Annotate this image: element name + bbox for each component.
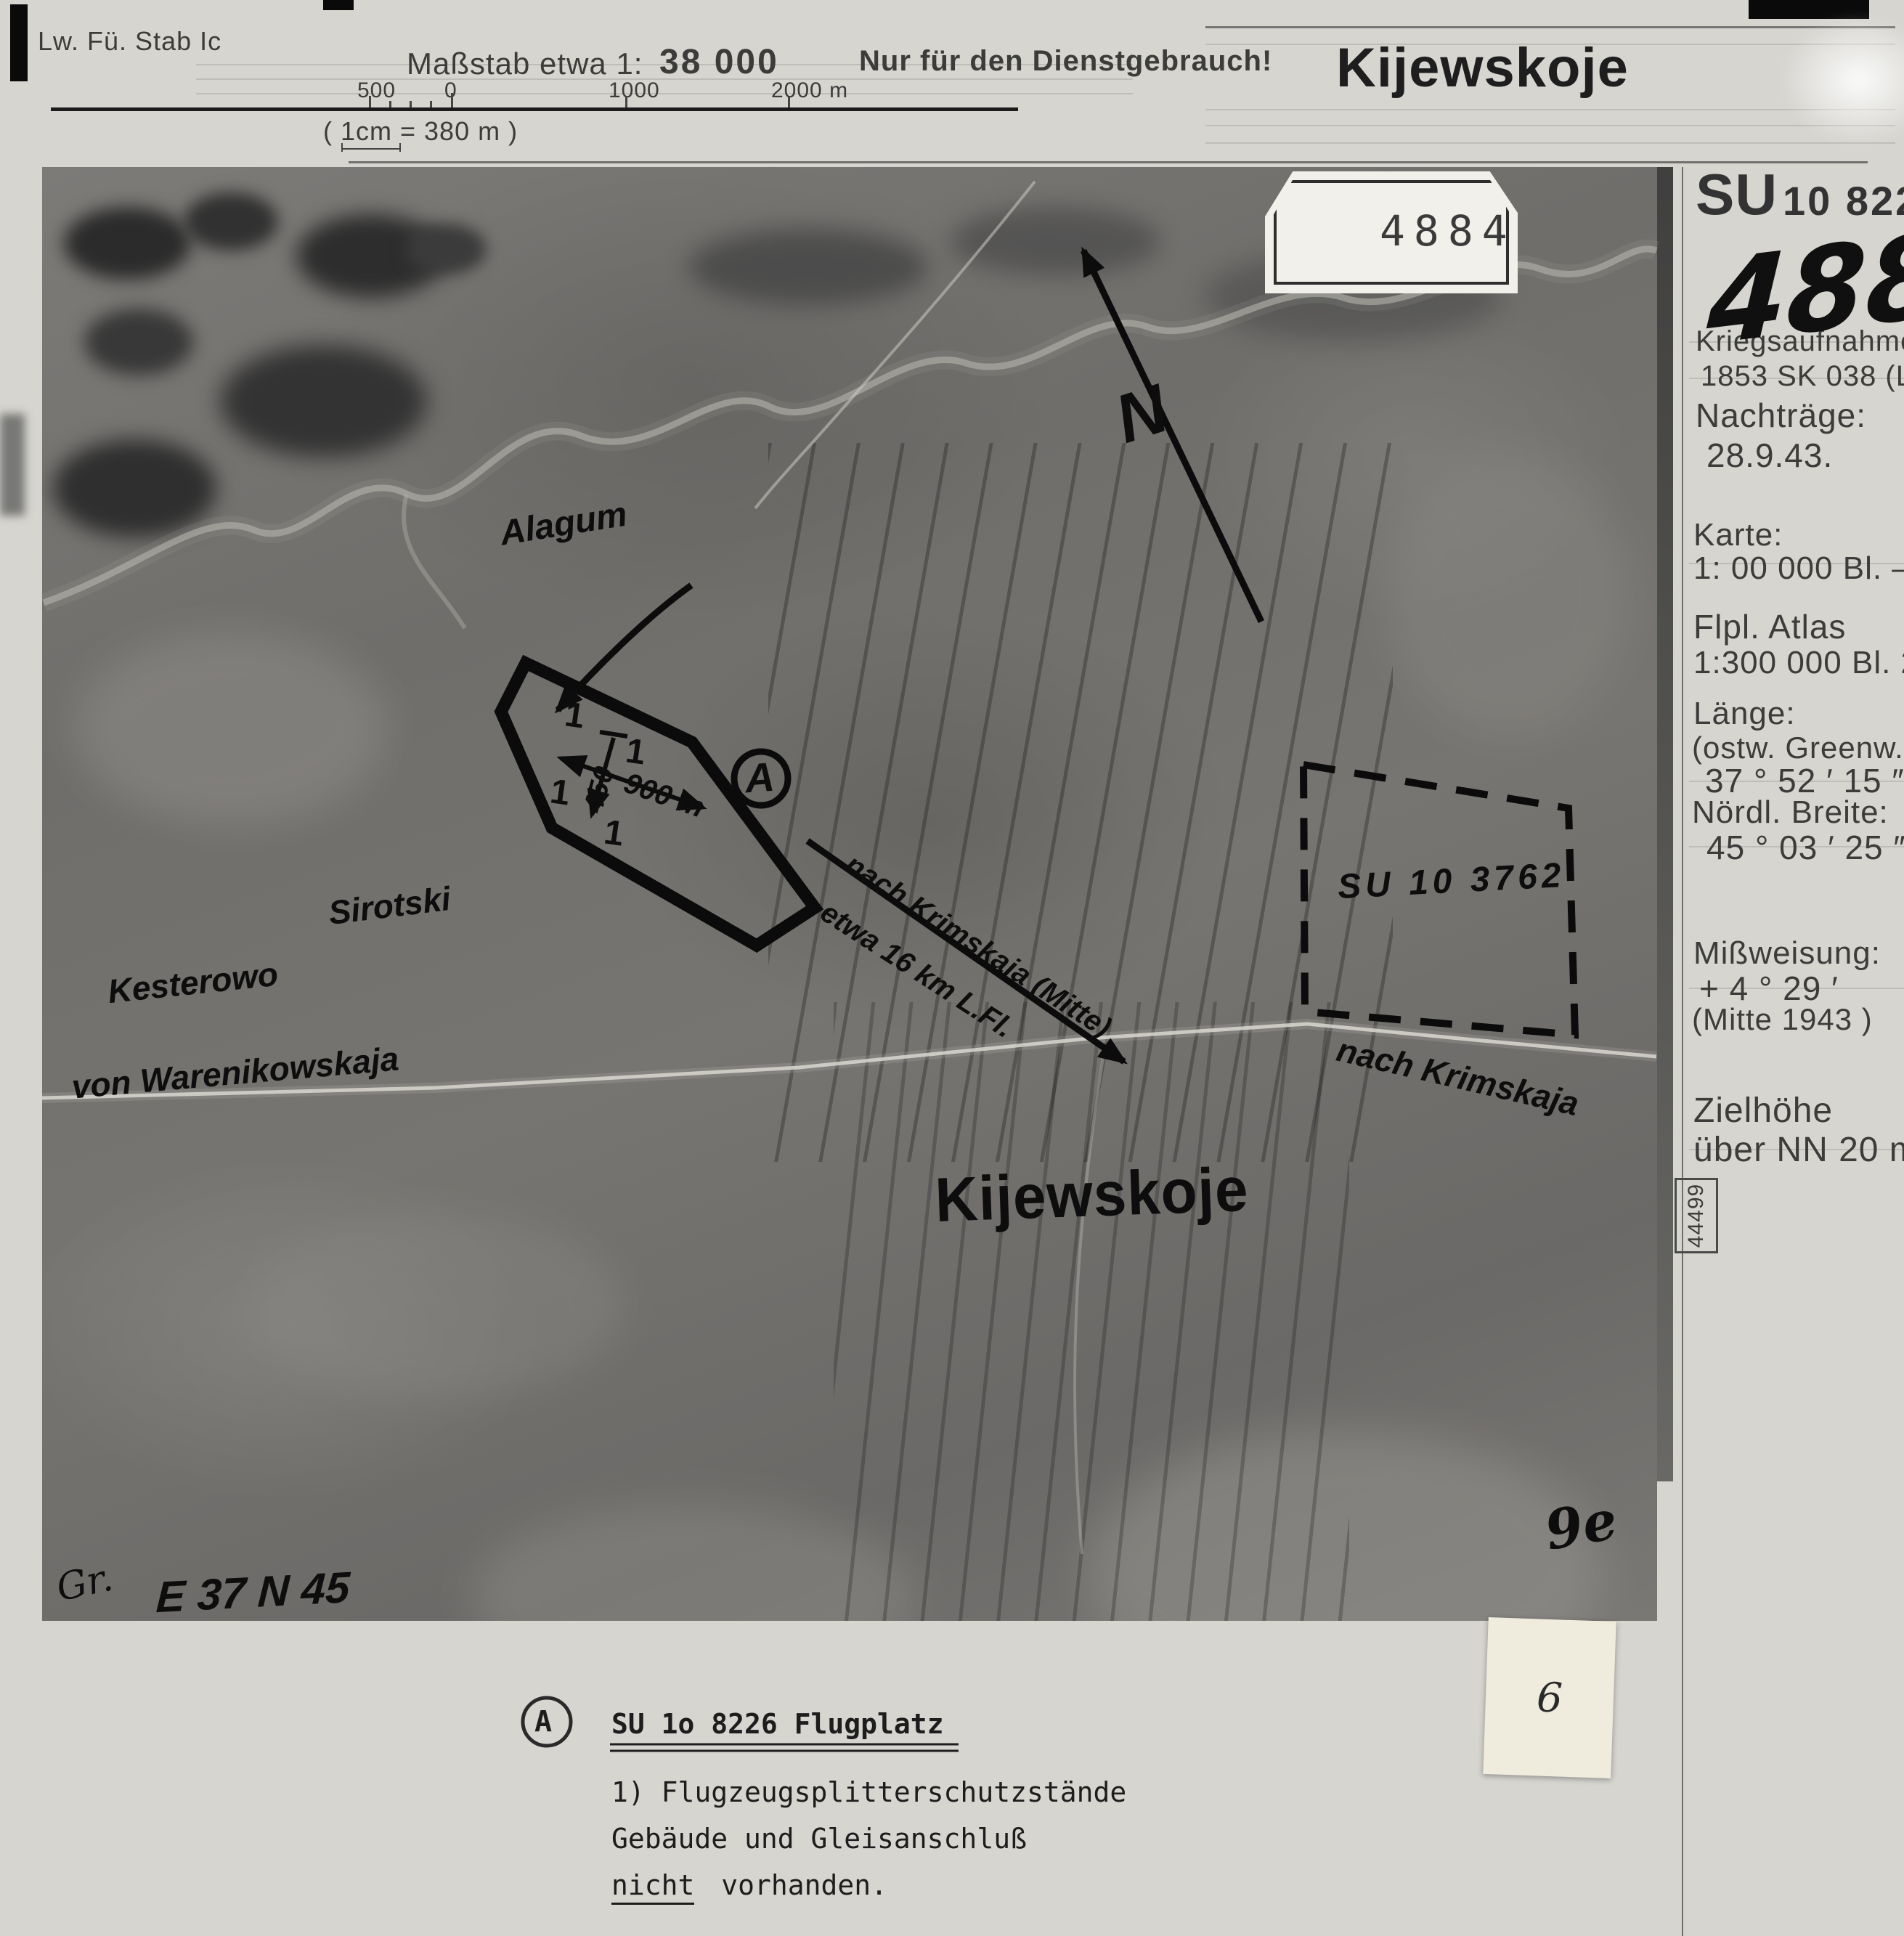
file-number: 44499 <box>1684 1184 1709 1248</box>
field-patch <box>75 632 387 824</box>
scale-tick <box>369 96 371 107</box>
field-patch <box>253 1213 623 1398</box>
village-tree-rows <box>834 1002 1349 1621</box>
handwritten-check-mark: 9e <box>1540 1489 1622 1563</box>
longitude-sub-label: (ostw. Greenw.): <box>1692 731 1904 765</box>
addenda-label: Nachträge: <box>1696 396 1866 435</box>
map-value: 1: 00 000 Bl. — <box>1693 550 1904 587</box>
scale-tick <box>625 96 627 107</box>
photo-number-tag: 4884 <box>1265 171 1518 293</box>
field-patch <box>1386 454 1629 733</box>
scale-cm-note: ( 1cm = 380 m ) <box>323 116 518 147</box>
restricted-stamp: Nur für den Dienstgebrauch! <box>859 45 1272 78</box>
cm-bracket-tick <box>341 143 343 152</box>
lake <box>53 439 216 537</box>
legend-line2: Gebäude und Gleisanschluß <box>611 1823 1027 1855</box>
paper-glare <box>1779 15 1904 145</box>
header-bottom-line <box>349 161 1868 163</box>
file-number-box: 44499 <box>1675 1178 1718 1253</box>
slip-number: 6 <box>1536 1674 1563 1722</box>
scale-tick <box>430 101 432 107</box>
sheet-title: Kijewskoje <box>1336 36 1629 99</box>
scale-tick <box>389 101 391 107</box>
scale-label: Maßstab etwa 1: <box>407 46 643 81</box>
cm-bracket-tick <box>399 143 401 152</box>
atlas-value: 1:300 000 Bl. 244 <box>1693 645 1904 681</box>
paper-slip: 6 <box>1483 1617 1616 1778</box>
legend-title: SU 1o 8226 Flugplatz <box>611 1708 944 1740</box>
reconnaissance-sheet: Lw. Fü. Stab Ic Maßstab etwa 1: 38 000 N… <box>0 0 1904 1936</box>
atlas-label: Flpl. Atlas <box>1693 607 1846 646</box>
grid-reference: E 37 N 45 <box>155 1562 351 1622</box>
scale-tick-label-500: 500 <box>357 78 396 103</box>
town-label: Kijewskoje <box>934 1154 1250 1237</box>
photo-edge-shadow <box>1657 167 1673 1481</box>
edge-mark <box>323 0 354 10</box>
issuing-unit: Lw. Fü. Stab Ic <box>38 26 221 57</box>
woodland <box>950 207 1160 276</box>
scale-tick-label-1000: 1000 <box>609 78 660 103</box>
declination-note: (Mitte 1943 ) <box>1692 1002 1873 1037</box>
lake <box>405 224 487 274</box>
legend-line3-rest: vorhanden. <box>721 1869 887 1901</box>
latitude-label: Nördl. Breite: <box>1692 794 1889 831</box>
scale-tick <box>788 96 790 107</box>
legend-marker-letter: A <box>534 1705 552 1738</box>
legend-line1: 1) Flugzeugsplitterschutzstände <box>611 1776 1126 1808</box>
scale-bar <box>51 107 1018 111</box>
declination-label: Mißweisung: <box>1693 935 1881 972</box>
woodland <box>688 229 928 305</box>
legend-line3: nicht vorhanden. <box>611 1869 887 1901</box>
sidebar-rule <box>1682 167 1683 1936</box>
cm-bracket <box>341 148 401 150</box>
longitude-label: Länge: <box>1693 696 1796 732</box>
scale-value: 38 000 <box>659 42 779 82</box>
lake <box>220 345 427 457</box>
lake <box>84 309 193 375</box>
lake <box>64 207 191 280</box>
map-label: Karte: <box>1693 517 1783 553</box>
scale-tick-label-2000: 2000 m <box>771 78 848 103</box>
photo-number-tag-value: 4884 <box>1380 206 1516 256</box>
scale-tick <box>410 101 412 107</box>
target-prefix: SU <box>1696 161 1778 228</box>
edge-mark <box>10 4 28 81</box>
target-height-value: über NN 20 m <box>1693 1130 1904 1170</box>
marker-a-letter: A <box>744 753 776 802</box>
header-ruled-line <box>196 93 1133 94</box>
target-height-label: Zielhöhe <box>1693 1091 1833 1131</box>
latitude-value: 45 ° 03 ′ 25 ″ <box>1706 828 1904 867</box>
scale-tick <box>451 93 453 107</box>
legend-line3-underlined: nicht <box>611 1869 694 1905</box>
lake <box>184 192 278 251</box>
addenda-date: 28.9.43. <box>1706 436 1833 475</box>
edge-smudge <box>0 414 25 516</box>
